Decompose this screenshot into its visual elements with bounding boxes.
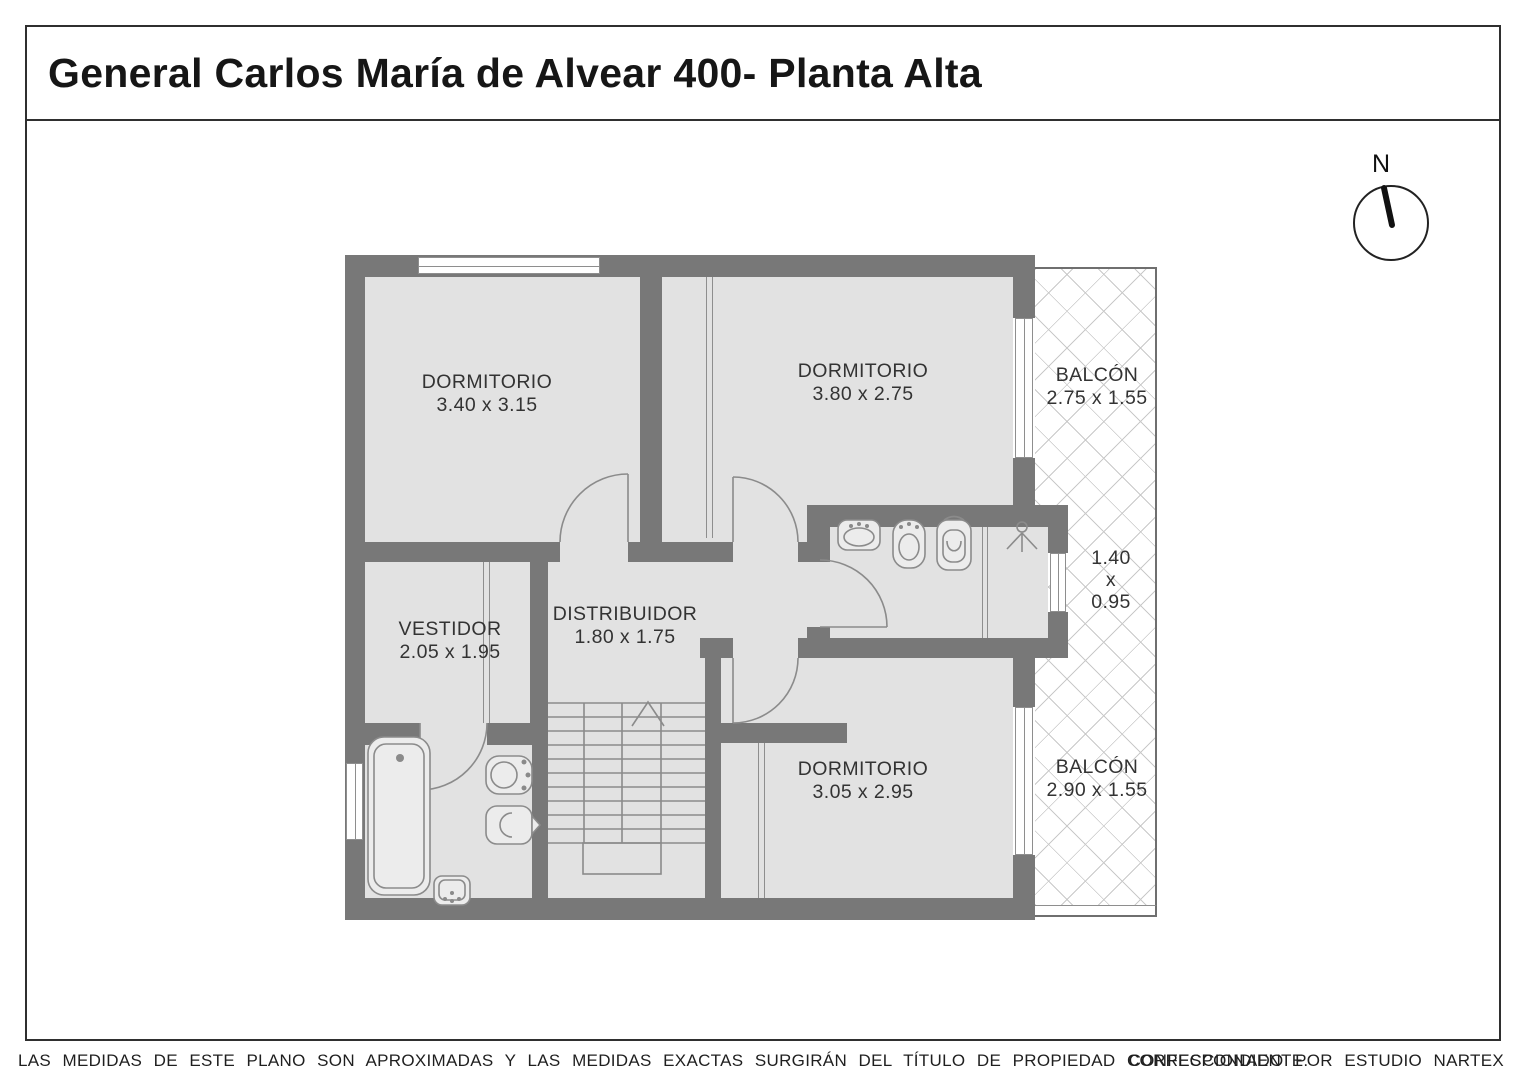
- wall: [628, 542, 733, 562]
- partition-line: [706, 277, 713, 538]
- room-dims: 3.80 x 2.75: [753, 383, 973, 406]
- bathroom-jut-floor: [1013, 527, 1048, 638]
- room-name: DISTRIBUIDOR: [530, 603, 720, 626]
- room-name: DORMITORIO: [753, 758, 973, 781]
- room-name: BALCÓN: [1037, 756, 1157, 779]
- wall: [1013, 855, 1035, 920]
- wall: [810, 505, 1068, 527]
- window: [346, 763, 363, 840]
- room-dims: 2.75 x 1.55: [1037, 387, 1157, 410]
- disclaimer-text: LAS MEDIDAS DE ESTE PLANO SON APROXIMADA…: [18, 1051, 1308, 1071]
- room-name: BALCÓN: [1037, 364, 1157, 387]
- window: [1015, 707, 1033, 855]
- wall: [640, 277, 662, 542]
- page-title: General Carlos María de Alvear 400- Plan…: [48, 50, 982, 97]
- wall: [1048, 505, 1068, 553]
- room-dims: 3.05 x 2.95: [753, 781, 973, 804]
- wall: [807, 638, 1068, 658]
- wall: [1013, 255, 1035, 318]
- room-dims: 2.05 x 1.95: [355, 641, 545, 664]
- wall: [345, 723, 420, 745]
- window: [418, 257, 600, 274]
- room-name: VESTIDOR: [355, 618, 545, 641]
- wall: [705, 658, 721, 898]
- wall: [345, 898, 1035, 920]
- shower-screen-line: [982, 527, 988, 638]
- window: [1015, 318, 1033, 458]
- room-label-balcon-2: BALCÓN 2.90 x 1.55: [1037, 756, 1157, 802]
- room-name: DORMITORIO: [377, 371, 597, 394]
- wall: [1013, 458, 1035, 507]
- credit-text: CONFECCIONADO POR ESTUDIO NARTEX: [1129, 1051, 1504, 1071]
- wall: [365, 542, 560, 562]
- room-name: DORMITORIO: [753, 360, 973, 383]
- compass-north-label: N: [1359, 150, 1403, 179]
- room-label-balcon-1: BALCÓN 2.75 x 1.55: [1037, 364, 1157, 410]
- dim-line: 0.95: [1066, 591, 1156, 613]
- dim-line: 1.40: [1066, 547, 1156, 569]
- room-label-dormitorio-1: DORMITORIO 3.40 x 3.15: [377, 371, 597, 417]
- room-label-vestidor: VESTIDOR 2.05 x 1.95: [355, 618, 545, 664]
- window: [1050, 553, 1066, 612]
- dim-line: x: [1066, 569, 1156, 591]
- room-dims: 2.90 x 1.55: [1037, 779, 1157, 802]
- floor-plan-page: General Carlos María de Alvear 400- Plan…: [0, 0, 1528, 1080]
- room-label-dormitorio-2: DORMITORIO 3.80 x 2.75: [753, 360, 973, 406]
- room-dims: 3.40 x 3.15: [377, 394, 597, 417]
- room-label-distribuidor: DISTRIBUIDOR 1.80 x 1.75: [530, 603, 720, 649]
- wall: [532, 723, 548, 898]
- wall: [713, 723, 847, 743]
- title-divider: [25, 119, 1501, 121]
- room-label-dormitorio-3: DORMITORIO 3.05 x 2.95: [753, 758, 973, 804]
- balcony-bottom-edge: [1035, 905, 1157, 917]
- wall: [1013, 653, 1035, 707]
- room-dims: 1.80 x 1.75: [530, 626, 720, 649]
- room-label-balcon-mid: 1.40 x 0.95: [1066, 547, 1156, 613]
- wall: [798, 638, 830, 658]
